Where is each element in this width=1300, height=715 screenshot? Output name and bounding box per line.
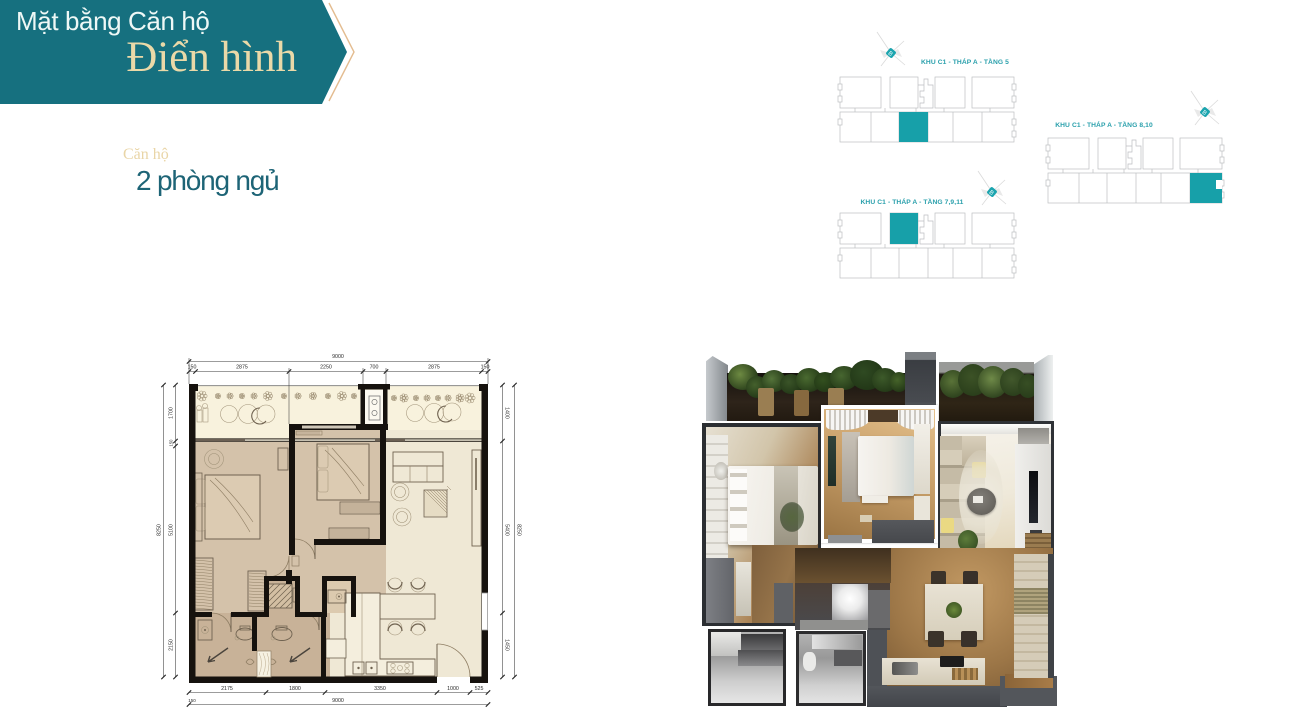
svg-text:1700: 1700 [169, 407, 175, 419]
svg-text:1000: 1000 [447, 686, 459, 692]
svg-text:150: 150 [169, 439, 174, 447]
svg-text:9000: 9000 [332, 354, 344, 360]
svg-text:700: 700 [370, 365, 379, 371]
svg-text:3350: 3350 [374, 686, 386, 692]
svg-text:5400: 5400 [504, 524, 510, 536]
svg-text:9000: 9000 [332, 698, 344, 704]
svg-text:5100: 5100 [169, 524, 175, 536]
svg-text:8250: 8250 [157, 524, 163, 536]
svg-text:KHU C1 - THÁP A - TẦNG 8,10: KHU C1 - THÁP A - TẦNG 8,10 [1055, 119, 1153, 129]
svg-text:1400: 1400 [504, 407, 510, 419]
svg-text:2150: 2150 [169, 639, 175, 651]
svg-text:8250: 8250 [516, 524, 522, 536]
svg-text:2875: 2875 [236, 365, 248, 371]
svg-text:2250: 2250 [320, 365, 332, 371]
svg-text:1800: 1800 [289, 686, 301, 692]
svg-text:KHU C1 - THÁP A - TẦNG 7,9,11: KHU C1 - THÁP A - TẦNG 7,9,11 [861, 196, 964, 206]
svg-text:2875: 2875 [428, 365, 440, 371]
svg-text:1450: 1450 [504, 639, 510, 651]
svg-text:150: 150 [188, 698, 196, 703]
svg-text:525: 525 [475, 686, 484, 692]
svg-text:KHU C1 - THÁP A - TẦNG 5: KHU C1 - THÁP A - TẦNG 5 [921, 56, 1009, 66]
svg-text:2175: 2175 [221, 686, 233, 692]
